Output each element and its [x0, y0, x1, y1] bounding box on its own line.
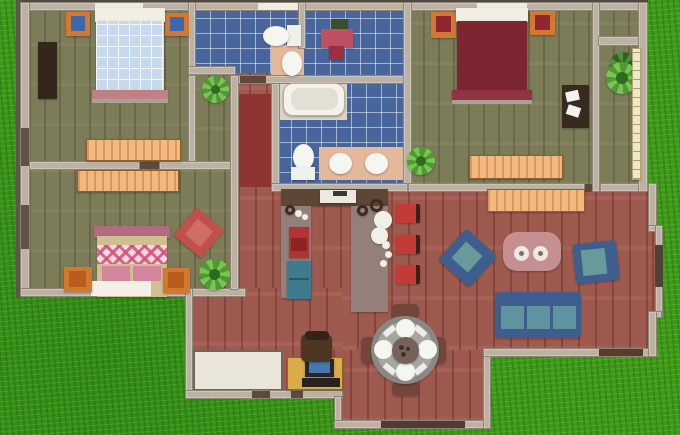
- plant-bedroom3[interactable]: [407, 147, 435, 175]
- wall-hallway-left: [230, 75, 239, 290]
- sofa-cushion-1: [501, 306, 524, 329]
- stove-door: [291, 238, 307, 251]
- nightstand-b2-left-top: [69, 271, 86, 287]
- plate-dot-left-2: [302, 214, 308, 220]
- bed-red-duvet[interactable]: [457, 21, 527, 91]
- alcove-shelf-ladder[interactable]: [632, 48, 641, 180]
- bathtub-basin: [291, 88, 338, 110]
- bar-stool-2[interactable]: [396, 235, 420, 254]
- armchair-blue-right-cushion: [581, 248, 608, 276]
- pot-right-1[interactable]: [370, 199, 383, 212]
- bowl-food-3: [401, 352, 406, 357]
- plate-dot-right-1: [382, 241, 390, 249]
- toilet-lower-tank[interactable]: [291, 167, 315, 180]
- bed-pink-pattern: [97, 245, 167, 264]
- door-mark-bottom-2: [291, 391, 303, 398]
- pot-right-2[interactable]: [357, 205, 368, 216]
- toilet-upper-tank[interactable]: [287, 25, 301, 46]
- plant-hall-corner[interactable]: [202, 76, 229, 103]
- plate-dot-right-2: [385, 251, 392, 258]
- dining-plate-east: [418, 340, 437, 359]
- doorway-bathroom: [240, 76, 266, 83]
- door-living-back: [599, 349, 643, 356]
- wall-living-left: [185, 288, 193, 398]
- dining-plate-west: [374, 340, 393, 359]
- door-mark-bottom-1: [252, 391, 270, 398]
- computer-screen: [309, 361, 330, 373]
- vanity-sink-right[interactable]: [365, 153, 388, 174]
- nightstand-b2-right-top: [168, 272, 184, 288]
- hallway-rug: [238, 94, 272, 187]
- wardrobe[interactable]: [38, 42, 57, 99]
- bed-pink-pillow-left: [102, 266, 130, 281]
- coffee-cup-2-center: [538, 251, 543, 256]
- refrigerator[interactable]: [287, 261, 311, 299]
- refrigerator-divider: [289, 278, 309, 280]
- dresser-bedroom1[interactable]: [86, 139, 181, 161]
- coffee-table[interactable]: [503, 232, 561, 271]
- nightstand-b3-right-top: [535, 15, 550, 30]
- plant-bedroom2[interactable]: [199, 259, 230, 290]
- bar-stool-3[interactable]: [396, 265, 420, 284]
- bed-blue-duvet[interactable]: [96, 21, 164, 91]
- nightstand-b3-left-top: [436, 16, 451, 32]
- sideboard-living[interactable]: [487, 189, 585, 212]
- nightstand-b1-left-top: [71, 16, 85, 31]
- office-chair-back: [305, 331, 329, 340]
- window-left-bedroom1: [21, 128, 29, 166]
- wall-sink[interactable]: [282, 51, 302, 76]
- sofa-cushion-3: [553, 306, 576, 329]
- toilet-upper-bowl[interactable]: [263, 26, 289, 46]
- wall-bedroom1-bottom-right: [159, 161, 238, 170]
- bed-red-pillows[interactable]: [456, 8, 528, 22]
- sim-character-legs[interactable]: [329, 46, 344, 60]
- wall-bedroom1-right-lower: [188, 75, 196, 170]
- dresser-bedroom3[interactable]: [469, 155, 563, 179]
- dining-plate-south: [396, 362, 415, 381]
- wall-dining-bay-right: [483, 350, 491, 429]
- bed-blue-base: [92, 99, 168, 103]
- dresser-bedroom2[interactable]: [77, 170, 179, 192]
- wall-hallway-right: [271, 83, 280, 187]
- pot-small-left[interactable]: [285, 205, 295, 215]
- vanity-sink-left[interactable]: [329, 153, 352, 174]
- window-left-bedroom2: [21, 205, 29, 249]
- window-top-bathroom: [258, 3, 298, 10]
- bar-stool-1[interactable]: [396, 204, 420, 223]
- plate-dot-left-1: [295, 210, 302, 217]
- dining-plate-north: [396, 319, 415, 338]
- dining-chair-south[interactable]: [392, 382, 419, 396]
- bed-pink-white-pillow: [91, 281, 151, 296]
- dining-center-bowl[interactable]: [392, 337, 419, 364]
- floorplan-canvas: [0, 0, 680, 435]
- plate-dot-right-3: [380, 260, 387, 267]
- bowl-food-2: [406, 347, 410, 351]
- porch-doormat: [381, 421, 465, 428]
- bed-pink-pillow-right: [133, 266, 161, 281]
- bed-red-base: [452, 100, 532, 104]
- wall-bedroom1-bottom-left: [29, 161, 140, 170]
- bed-blue-pillows[interactable]: [95, 8, 165, 22]
- wall-living-right-lower: [648, 311, 657, 357]
- computer-keyboard: [302, 378, 340, 387]
- kitchen-faucet: [333, 191, 347, 196]
- coffee-cup-1-center: [519, 251, 524, 256]
- window-right-bay: [655, 245, 663, 287]
- doorway-bedroom1-bedroom2: [140, 162, 159, 169]
- wall-bathroom-left-bottom: [188, 66, 236, 75]
- white-area-rug: [193, 350, 283, 391]
- wall-bedroom3-alcove: [592, 2, 600, 192]
- bowl-food-1: [399, 345, 404, 350]
- sofa-cushion-2: [527, 306, 550, 329]
- nightstand-b1-right-top: [170, 17, 184, 31]
